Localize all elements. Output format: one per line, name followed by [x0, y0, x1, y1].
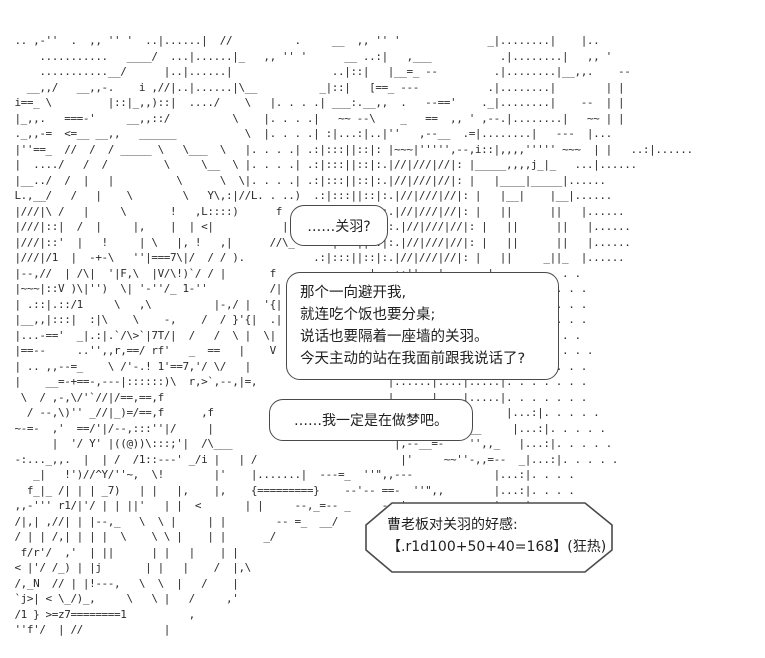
speech-bubble-guanyu: ……关羽?: [290, 205, 388, 246]
dice-roll-panel: 曹老板对关羽的好感: 【.r1d100+50+40=168】(狂热): [365, 502, 613, 573]
speech-text-dream: ……我一定是在做梦吧。: [294, 410, 448, 430]
speech-bubble-monologue: 那个一向避开我, 就连吃个饭也要分桌; 说话也要隔着一座墙的关羽。 今天主动的站…: [286, 272, 559, 380]
speech-text-guanyu: ……关羽?: [307, 216, 370, 236]
speech-bubble-dream: ……我一定是在做梦吧。: [269, 399, 473, 441]
aa-scene: .. ,-'' . ,, '' ' ..|......| // . __ ,, …: [0, 0, 765, 658]
dice-roll-text: 曹老板对关羽的好感: 【.r1d100+50+40=168】(狂热): [387, 515, 606, 558]
speech-text-monologue: 那个一向避开我, 就连吃个饭也要分桌; 说话也要隔着一座墙的关羽。 今天主动的站…: [300, 282, 525, 370]
